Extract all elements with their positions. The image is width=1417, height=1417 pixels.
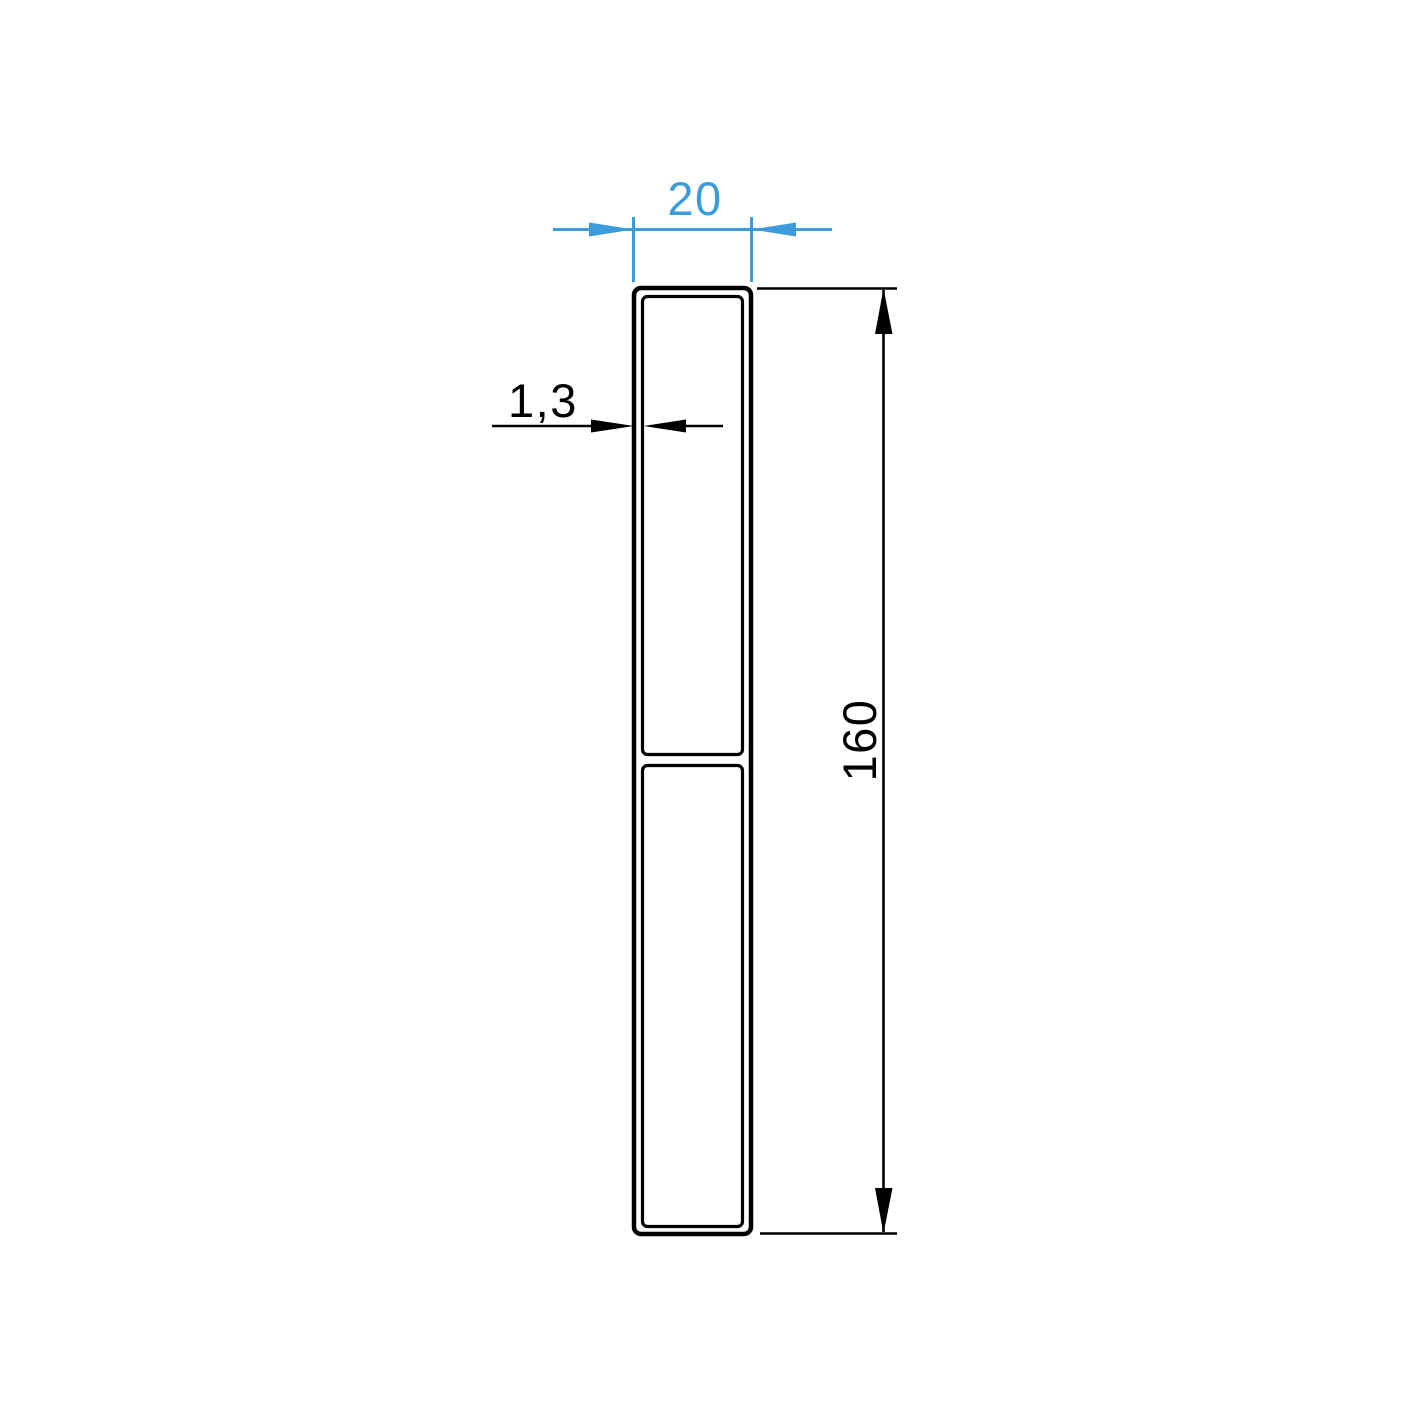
drawing-canvas: 20 1,3 160 [0, 0, 1417, 1417]
technical-drawing: 20 1,3 160 [0, 0, 1417, 1417]
thickness-dim-arrowhead-right [644, 420, 687, 433]
height-dimension-label: 160 [833, 699, 886, 782]
thickness-dimension-label: 1,3 [508, 374, 578, 427]
profile-outer-outline [634, 288, 751, 1234]
profile-inner-top-chamber [643, 297, 743, 755]
width-dimension-label: 20 [667, 172, 722, 225]
height-dimension: 160 [757, 289, 897, 1234]
height-dim-arrowhead-top [875, 289, 893, 335]
width-dim-arrowhead-left [589, 223, 634, 237]
profile-outline-group [634, 288, 751, 1234]
width-dim-arrowhead-right [752, 223, 797, 237]
thickness-dimension: 1,3 [492, 374, 723, 433]
thickness-dim-arrowhead-left [591, 420, 634, 433]
profile-inner-bottom-chamber [643, 766, 743, 1227]
width-dimension: 20 [553, 172, 832, 282]
height-dim-arrowhead-bottom [875, 1188, 893, 1234]
